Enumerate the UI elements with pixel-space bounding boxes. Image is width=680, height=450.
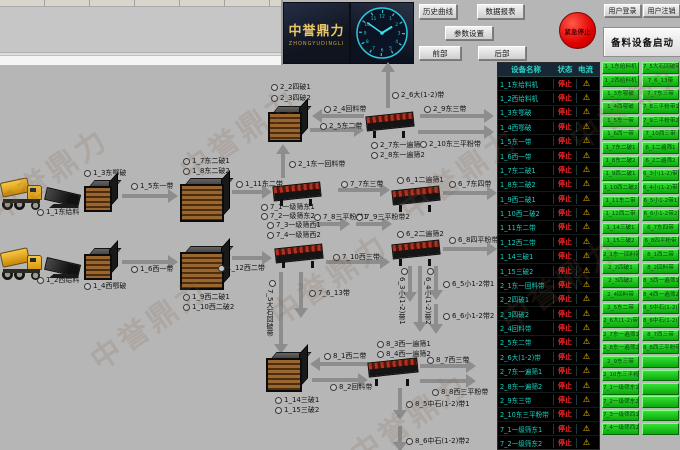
device-status: 停止 — [554, 136, 577, 146]
vibrating-feeder-icon[interactable] — [46, 186, 82, 208]
status-dot-icon — [392, 92, 399, 99]
current-alarm-icon: ⚠ — [577, 80, 596, 88]
device-status: 停止 — [554, 266, 577, 276]
status-dot-icon — [131, 266, 138, 273]
table-row[interactable]: 1_7东二破1停止⚠ — [498, 163, 599, 177]
current-alarm-icon: ⚠ — [577, 94, 596, 102]
current-alarm-icon: ⚠ — [577, 281, 596, 289]
device-status: 停止 — [554, 395, 577, 405]
device-label: 6_8四平粉带 — [449, 236, 498, 244]
device-label: 1_2西给料 — [37, 276, 79, 284]
device-status: 停止 — [554, 424, 577, 434]
device-start-button[interactable]: 1_2西给料机 — [602, 75, 639, 87]
vibrating-screen-icon[interactable] — [366, 110, 414, 138]
device-label: 1_11东二带 — [236, 180, 283, 188]
status-dot-icon — [449, 237, 456, 244]
current-alarm-icon: ⚠ — [577, 152, 596, 160]
device-start-button[interactable]: 6_2二遍筛2 — [642, 156, 679, 168]
device-start-button[interactable]: 1_4西鄂破 — [602, 102, 639, 114]
device-start-button[interactable]: 1_14三破1 — [602, 223, 639, 235]
device-status: 停止 — [554, 294, 577, 304]
device-label: 7_7东三带 — [341, 180, 383, 188]
device-label: 1_14三破1 — [275, 396, 319, 404]
device-label: 6_5小1-2带1 — [443, 280, 494, 288]
device-start-button[interactable]: 1_8东二破2 — [602, 156, 639, 168]
status-dot-icon — [427, 268, 434, 275]
status-dot-icon — [261, 213, 268, 220]
device-start-button[interactable]: 7_3一级筛西1 — [602, 410, 639, 422]
device-label: 1_15三破2 — [275, 406, 319, 414]
current-alarm-icon: ⚠ — [577, 137, 596, 145]
device-label: 7_5大石回破带 — [266, 280, 276, 336]
current-alarm-icon: ⚠ — [577, 410, 596, 418]
status-dot-icon — [183, 294, 190, 301]
device-label: 8_1西二带 — [324, 352, 366, 360]
table-row[interactable]: 1_11东二带停止⚠ — [498, 221, 599, 235]
current-alarm-icon: ⚠ — [577, 180, 596, 188]
device-start-button[interactable]: 7_2一级筛东2 — [602, 396, 639, 408]
status-dot-icon — [309, 290, 316, 297]
device-start-button[interactable]: 1_12西二带 — [602, 209, 639, 221]
device-start-button[interactable]: 7_8三平粉带1 — [642, 102, 679, 114]
crusher-icon[interactable] — [268, 106, 308, 142]
device-label: 1_4西鄂破 — [84, 282, 126, 290]
device-status: 停止 — [554, 280, 577, 290]
table-row[interactable]: 1_15三破2停止⚠ — [498, 264, 599, 278]
device-start-button[interactable]: 8_8西三平粉带 — [642, 343, 679, 355]
device-start-button[interactable]: 2_3四破2 — [602, 276, 639, 288]
device-start-button[interactable]: 1_15三破2 — [602, 236, 639, 248]
table-row[interactable]: 1_6西一带停止⚠ — [498, 149, 599, 163]
device-start-button[interactable] — [642, 356, 679, 368]
device-name: 7_1一级筛东1 — [498, 424, 554, 434]
device-label: 1_9西二破1 — [183, 293, 230, 301]
device-name: 2_9东三带 — [498, 395, 554, 405]
device-label: 1_7东二破1 — [183, 157, 230, 165]
current-alarm-icon: ⚠ — [577, 123, 596, 131]
device-name: 7_2一级筛东2 — [498, 438, 554, 448]
device-label: 2_2四破1 — [271, 83, 311, 91]
device-label: 2_5东二带 — [320, 122, 362, 130]
device-name: 1_10西二破2 — [498, 208, 554, 218]
device-label: 1_5东一带 — [131, 182, 173, 190]
table-row[interactable]: 7_1一级筛东1停止⚠ — [498, 422, 599, 436]
current-alarm-icon: ⚠ — [577, 252, 596, 260]
status-dot-icon — [84, 283, 91, 290]
device-start-button[interactable]: 7_4一级筛西2 — [602, 423, 639, 435]
device-status: 停止 — [554, 352, 577, 362]
start-button-grid: 1_1东给料机7_5大石回破带1_2西给料机7_6_13带1_3东鄂破7_7东三… — [602, 62, 680, 450]
table-row[interactable]: 2_5东二带停止⚠ — [498, 336, 599, 350]
device-label: 2_10东三平粉带 — [420, 140, 481, 148]
table-row[interactable]: 2_3四破2停止⚠ — [498, 307, 599, 321]
vibrating-feeder-icon[interactable] — [46, 256, 82, 278]
device-start-button[interactable]: 2_6大(1-2)带 — [602, 316, 639, 328]
status-dot-icon — [443, 281, 450, 288]
device-name: 1_6西一带 — [498, 151, 554, 161]
device-label: 6_2二遍筛2 — [397, 230, 444, 238]
col-device-name: 设备名称 — [498, 64, 554, 75]
device-start-button[interactable]: 2_8东一遍筛2 — [602, 343, 639, 355]
device-label: 1_6西一带 — [131, 265, 173, 273]
device-label: 8_7西三带 — [427, 356, 469, 364]
device-start-button[interactable]: 8_2回料带 — [642, 263, 679, 275]
status-dot-icon — [427, 357, 434, 364]
table-row[interactable]: 2_1东一回料带停止⚠ — [498, 278, 599, 292]
table-row[interactable]: 2_9东三带停止⚠ — [498, 393, 599, 407]
device-label: 7_3一级筛西1 — [267, 221, 321, 229]
current-alarm-icon: ⚠ — [577, 338, 596, 346]
device-label: 2_1东一回料带 — [289, 160, 345, 168]
status-dot-icon — [333, 254, 340, 261]
device-status: 停止 — [554, 309, 577, 319]
device-name: 1_15三破2 — [498, 266, 554, 276]
table-row[interactable]: 7_2一级筛东2停止⚠ — [498, 436, 599, 450]
device-start-button[interactable]: 2_2四破1 — [602, 263, 639, 275]
dump-truck-icon[interactable] — [1, 246, 43, 280]
status-dot-icon — [341, 181, 348, 188]
dump-truck-icon[interactable] — [1, 176, 43, 210]
device-start-button[interactable]: 6_4小(1-2)带2 — [642, 182, 679, 194]
device-start-button[interactable]: 1_5东一带 — [602, 116, 639, 128]
device-start-button[interactable]: 8_3西一遍筛1 — [642, 276, 679, 288]
status-dot-icon — [443, 313, 450, 320]
current-alarm-icon: ⚠ — [577, 195, 596, 203]
device-start-button[interactable] — [642, 383, 679, 395]
status-dot-icon — [356, 214, 363, 221]
device-start-button[interactable]: 7_10西三带 — [642, 129, 679, 141]
device-status: 停止 — [554, 151, 577, 161]
status-dot-icon — [183, 304, 190, 311]
vibrating-screen-icon[interactable] — [392, 238, 440, 266]
table-row[interactable]: 1_12西二带停止⚠ — [498, 235, 599, 249]
device-name: 1_5东一带 — [498, 136, 554, 146]
table-row[interactable]: 2_6大(1-2)带停止⚠ — [498, 350, 599, 364]
device-start-button[interactable]: 8_5中石(1-2)带1 — [642, 303, 679, 315]
status-dot-icon — [401, 268, 408, 275]
status-dot-icon — [218, 265, 225, 272]
status-dot-icon — [324, 106, 331, 113]
device-status: 停止 — [554, 122, 577, 132]
status-dot-icon — [330, 384, 337, 391]
table-row[interactable]: 1_1东给料机停止⚠ — [498, 77, 599, 91]
device-status: 停止 — [554, 208, 577, 218]
device-label: 7_1一级筛东1 — [261, 203, 315, 211]
status-dot-icon — [432, 389, 439, 396]
col-current: 电流 — [576, 64, 595, 75]
device-start-button[interactable]: 1_7东二破1 — [602, 142, 639, 154]
device-label: 6_3小(1-2)带1 — [398, 268, 408, 325]
device-name: 2_4回料带 — [498, 323, 554, 333]
device-start-button[interactable]: 6_3小(1-2)带1 — [642, 169, 679, 181]
device-name: 1_14三破1 — [498, 251, 554, 261]
device-label: 8_8西三平粉带 — [432, 388, 488, 396]
device-status: 停止 — [554, 93, 577, 103]
device-label: 8_4西一遍筛2 — [377, 350, 431, 358]
device-start-button[interactable]: 2_10东三平粉带 — [602, 370, 639, 382]
device-start-button[interactable] — [642, 370, 679, 382]
current-alarm-icon: ⚠ — [577, 396, 596, 404]
current-alarm-icon: ⚠ — [577, 223, 596, 231]
device-label: 8_3西一遍筛1 — [377, 340, 431, 348]
table-row[interactable]: 1_2西给料机停止⚠ — [498, 91, 599, 105]
device-start-button[interactable]: 6_5小1-2带1 — [642, 196, 679, 208]
device-name: 1_3东鄂破 — [498, 107, 554, 117]
status-dot-icon — [261, 204, 268, 211]
table-row[interactable]: 1_9西二破1停止⚠ — [498, 192, 599, 206]
status-dot-icon — [320, 123, 327, 130]
device-start-button[interactable]: 8_1西二带 — [642, 249, 679, 261]
status-dot-icon — [371, 152, 378, 159]
status-dot-icon — [289, 161, 296, 168]
device-name: 1_2西给料机 — [498, 93, 554, 103]
device-label: 1_3东鄂破 — [84, 169, 126, 177]
status-dot-icon — [424, 106, 431, 113]
device-name: 2_8东一遍筛2 — [498, 381, 554, 391]
device-table-header: 设备名称 状态 电流 — [498, 63, 599, 77]
device-name: 2_2四破1 — [498, 294, 554, 304]
device-start-button[interactable]: 1_6西一带 — [602, 129, 639, 141]
table-row[interactable]: 1_10西二破2停止⚠ — [498, 206, 599, 220]
status-dot-icon — [275, 397, 282, 404]
device-name: 1_7东二破1 — [498, 165, 554, 175]
crusher-icon[interactable] — [180, 178, 230, 222]
device-name: 2_6大(1-2)带 — [498, 352, 554, 362]
device-table-body: 1_1东给料机停止⚠1_2西给料机停止⚠1_3东鄂破停止⚠1_4西鄂破停止⚠1_… — [498, 77, 599, 450]
device-status: 停止 — [554, 179, 577, 189]
device-start-button[interactable]: 2_9东三带 — [602, 356, 639, 368]
status-dot-icon — [397, 177, 404, 184]
device-start-button[interactable]: 7_1一级筛东1 — [602, 383, 639, 395]
device-status: 停止 — [554, 409, 577, 419]
current-alarm-icon: ⚠ — [577, 108, 596, 116]
device-start-button[interactable]: 8_7西三带 — [642, 330, 679, 342]
device-start-button[interactable]: 7_7东三带 — [642, 89, 679, 101]
device-start-button[interactable] — [642, 410, 679, 422]
current-alarm-icon: ⚠ — [577, 439, 596, 447]
device-label: 7_4一级筛西2 — [267, 231, 321, 239]
current-alarm-icon: ⚠ — [577, 267, 596, 275]
status-dot-icon — [324, 353, 331, 360]
device-status: 停止 — [554, 251, 577, 261]
table-row[interactable]: 1_8东二破2停止⚠ — [498, 178, 599, 192]
device-label: 8_5中石(1-2)带1 — [406, 400, 470, 408]
status-dot-icon — [183, 168, 190, 175]
status-dot-icon — [449, 181, 456, 188]
device-start-button[interactable]: 6_7东四带 — [642, 223, 679, 235]
crusher-icon[interactable] — [266, 352, 308, 392]
table-row[interactable]: 2_10东三平粉带停止⚠ — [498, 408, 599, 422]
device-label: 2_8东一遍筛2 — [371, 151, 425, 159]
device-label: 2_3四破2 — [271, 94, 311, 102]
vibrating-screen-icon[interactable] — [392, 184, 440, 212]
device-name: 1_8东二破2 — [498, 179, 554, 189]
crusher-icon[interactable] — [84, 248, 118, 280]
status-dot-icon — [271, 84, 278, 91]
status-dot-icon — [183, 158, 190, 165]
status-dot-icon — [267, 232, 274, 239]
device-status: 停止 — [554, 79, 577, 89]
status-dot-icon — [406, 438, 413, 445]
device-name: 2_7东一遍筛1 — [498, 366, 554, 376]
device-label: 8_2回料带 — [330, 383, 372, 391]
current-alarm-icon: ⚠ — [577, 367, 596, 375]
device-label: 2_4回料带 — [324, 105, 366, 113]
device-label: 1_12西二带 — [218, 264, 265, 272]
device-start-button[interactable]: 7_6_13带 — [642, 75, 679, 87]
device-name: 2_1东一回料带 — [498, 280, 554, 290]
current-alarm-icon: ⚠ — [577, 310, 596, 318]
status-dot-icon — [37, 277, 44, 284]
device-table: 设备名称 状态 电流 1_1东给料机停止⚠1_2西给料机停止⚠1_3东鄂破停止⚠… — [497, 62, 600, 450]
device-start-button[interactable]: 8_6中石(1-2)带2 — [642, 316, 679, 328]
device-label: 1_10西二破2 — [183, 303, 234, 311]
device-name: 1_4西鄂破 — [498, 122, 554, 132]
current-alarm-icon: ⚠ — [577, 324, 596, 332]
status-dot-icon — [377, 341, 384, 348]
status-dot-icon — [267, 222, 274, 229]
device-name: 1_9西二破1 — [498, 194, 554, 204]
device-name: 2_3四破2 — [498, 309, 554, 319]
device-label: 6_1二遍筛1 — [397, 176, 444, 184]
device-start-button[interactable] — [642, 396, 679, 408]
device-name: 2_10东三平粉带 — [498, 409, 554, 419]
device-label: 1_1东给料 — [37, 208, 79, 216]
current-alarm-icon: ⚠ — [577, 382, 596, 390]
device-label: 7_2一级筛东2 — [261, 212, 315, 220]
device-label: 1_8东二破2 — [183, 167, 230, 175]
device-status: 停止 — [554, 381, 577, 391]
device-start-button[interactable]: 1_11东二带 — [602, 196, 639, 208]
device-start-button[interactable]: 6_8四平粉带 — [642, 236, 679, 248]
status-dot-icon — [377, 351, 384, 358]
current-alarm-icon: ⚠ — [577, 353, 596, 361]
device-start-button[interactable]: 1_10西二破2 — [602, 182, 639, 194]
device-start-button[interactable]: 1_9西二破1 — [602, 169, 639, 181]
device-name: 1_1东给料机 — [498, 79, 554, 89]
device-label: 6_7东四带 — [449, 180, 491, 188]
status-dot-icon — [371, 142, 378, 149]
status-dot-icon — [84, 170, 91, 177]
table-row[interactable]: 2_2四破1停止⚠ — [498, 293, 599, 307]
current-alarm-icon: ⚠ — [577, 295, 596, 303]
device-label: 8_6中石(1-2)带2 — [406, 437, 470, 445]
device-status: 停止 — [554, 237, 577, 247]
device-label: 2_6大(1-2)带 — [392, 91, 444, 99]
device-start-button[interactable]: 6_1二遍筛1 — [642, 142, 679, 154]
status-dot-icon — [271, 95, 278, 102]
device-status: 停止 — [554, 337, 577, 347]
table-row[interactable]: 2_7东一遍筛1停止⚠ — [498, 365, 599, 379]
device-start-button[interactable]: 2_1东一回料带 — [602, 249, 639, 261]
device-start-button[interactable]: 1_3东鄂破 — [602, 89, 639, 101]
device-label: 7_6_13带 — [309, 289, 350, 297]
device-start-button[interactable]: 2_5东二带 — [602, 303, 639, 315]
current-alarm-icon: ⚠ — [577, 166, 596, 174]
crusher-icon[interactable] — [84, 180, 118, 212]
status-dot-icon — [131, 183, 138, 190]
device-label: 7_9三平粉带2 — [356, 213, 410, 221]
table-row[interactable]: 2_8东一遍筛2停止⚠ — [498, 379, 599, 393]
table-row[interactable]: 1_3东鄂破停止⚠ — [498, 106, 599, 120]
device-name: 2_5东二带 — [498, 337, 554, 347]
device-status: 停止 — [554, 323, 577, 333]
device-name: 1_12西二带 — [498, 237, 554, 247]
device-start-button[interactable]: 8_4西一遍筛2 — [642, 289, 679, 301]
hmi-screen: 中誉鼎力 ZHONGYUDINGLI 121234567891011 历史曲线数… — [0, 0, 680, 450]
device-start-button[interactable] — [642, 423, 679, 435]
status-dot-icon — [236, 181, 243, 188]
status-dot-icon — [37, 209, 44, 216]
status-dot-icon — [314, 214, 321, 221]
device-status: 停止 — [554, 222, 577, 232]
table-row[interactable]: 2_4回料带停止⚠ — [498, 321, 599, 335]
table-row[interactable]: 1_14三破1停止⚠ — [498, 250, 599, 264]
table-row[interactable]: 1_4西鄂破停止⚠ — [498, 120, 599, 134]
device-name: 1_11东二带 — [498, 222, 554, 232]
device-status: 停止 — [554, 438, 577, 448]
device-label: 2_7东一遍筛1 — [371, 141, 425, 149]
device-start-button[interactable]: 2_4回料带 — [602, 289, 639, 301]
device-status: 停止 — [554, 366, 577, 376]
device-label: 6_4小(1-2)带2 — [424, 268, 434, 325]
status-dot-icon — [397, 231, 404, 238]
device-start-button[interactable]: 1_1东给料机 — [602, 62, 639, 74]
device-start-button[interactable]: 7_9三平粉带2 — [642, 116, 679, 128]
device-start-button[interactable]: 7_5大石回破带 — [642, 62, 679, 74]
vibrating-screen-icon[interactable] — [368, 356, 418, 386]
current-alarm-icon: ⚠ — [577, 238, 596, 246]
status-dot-icon — [406, 401, 413, 408]
device-start-button[interactable]: 2_7东一遍筛1 — [602, 330, 639, 342]
device-label: 2_9东三带 — [424, 105, 466, 113]
status-dot-icon — [420, 141, 427, 148]
device-status: 停止 — [554, 107, 577, 117]
device-label: 6_6小1-2带2 — [443, 312, 494, 320]
current-alarm-icon: ⚠ — [577, 209, 596, 217]
device-status: 停止 — [554, 194, 577, 204]
status-dot-icon — [269, 280, 276, 287]
vibrating-screen-icon[interactable] — [275, 242, 323, 268]
table-row[interactable]: 1_5东一带停止⚠ — [498, 135, 599, 149]
col-status: 状态 — [554, 64, 576, 75]
current-alarm-icon: ⚠ — [577, 425, 596, 433]
device-start-button[interactable]: 6_6小1-2带2 — [642, 209, 679, 221]
device-label: 7_10西三带 — [333, 253, 380, 261]
status-dot-icon — [275, 407, 282, 414]
device-status: 停止 — [554, 165, 577, 175]
